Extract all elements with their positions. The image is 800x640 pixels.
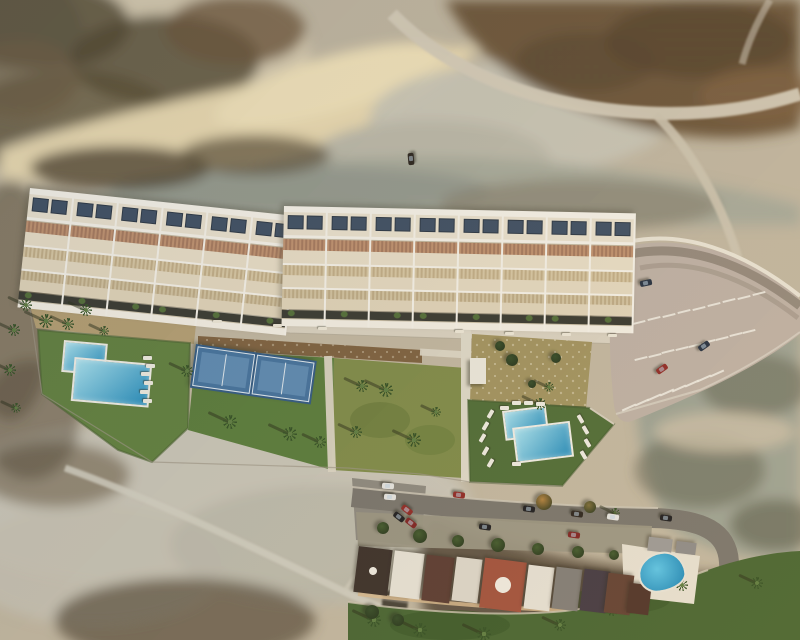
parking-bay-line <box>677 309 690 314</box>
shrub <box>341 311 348 317</box>
car <box>607 513 620 521</box>
terrace <box>327 251 369 267</box>
car <box>392 511 405 523</box>
parking-bay-line <box>742 329 755 334</box>
car <box>479 523 492 531</box>
terrace <box>283 250 325 266</box>
townhouse-west-row <box>17 188 286 334</box>
pergola-lattice <box>546 295 588 305</box>
pergola <box>459 243 501 255</box>
house-roof <box>675 541 696 555</box>
car <box>404 517 417 529</box>
solar-panel <box>76 202 93 218</box>
parking-bay-line <box>752 291 765 296</box>
pergola <box>283 239 325 251</box>
tree <box>551 353 561 363</box>
pergola-lattice <box>502 294 544 304</box>
bench <box>505 332 514 335</box>
solar-panel <box>438 218 454 232</box>
house-roof <box>647 537 673 554</box>
house-roof <box>353 546 392 596</box>
parking-bay-line <box>647 316 660 321</box>
pergola-lattice <box>282 289 324 299</box>
car <box>523 505 536 513</box>
tree <box>536 494 552 510</box>
front-wall <box>281 318 323 327</box>
front-wall <box>457 322 499 331</box>
front-wall <box>589 324 631 333</box>
tree <box>584 501 596 513</box>
shrub <box>159 306 167 313</box>
tree <box>452 535 464 547</box>
townhouse-unit <box>281 206 328 327</box>
front-wall <box>369 320 411 329</box>
car-windshield <box>482 525 488 530</box>
unit-roof <box>327 213 369 237</box>
car-windshield <box>403 507 409 513</box>
shrub <box>212 312 220 319</box>
car-windshield <box>610 515 616 520</box>
parking-bay-line <box>632 320 645 325</box>
terrace <box>502 280 544 295</box>
palm-tree <box>11 403 21 413</box>
palm-tree <box>477 627 491 640</box>
unit-roof <box>503 217 545 241</box>
unit-roof <box>459 216 501 240</box>
shrub <box>552 316 559 322</box>
pergola-lattice <box>458 293 500 303</box>
tree <box>365 605 379 619</box>
sun-lounger <box>482 421 490 431</box>
parking-bay-line <box>729 332 742 337</box>
solar-panel <box>32 197 49 213</box>
sun-lounger <box>536 402 545 406</box>
tree <box>528 380 536 388</box>
townhouse-unit <box>589 212 636 333</box>
solar-panel <box>551 221 567 235</box>
sun-lounger <box>580 450 588 460</box>
car-windshield <box>571 533 577 538</box>
terrace <box>326 276 368 291</box>
palm-tree <box>99 326 109 336</box>
terrace <box>547 256 589 272</box>
pergola <box>591 245 633 257</box>
terrace <box>370 300 412 312</box>
pergola-lattice <box>414 292 456 302</box>
terrace <box>458 279 500 294</box>
solar-panel <box>419 218 435 232</box>
palm-tree <box>413 623 427 637</box>
padel-court <box>192 346 255 394</box>
sun-lounger <box>577 414 585 424</box>
shrub <box>605 317 612 323</box>
palm-tree <box>407 433 421 447</box>
terrace <box>414 301 456 313</box>
parking-bay-line <box>707 302 720 307</box>
bench <box>455 330 464 333</box>
parking-bay-line <box>715 336 728 341</box>
pergola <box>547 245 589 257</box>
palm-tree <box>62 318 74 330</box>
terrace <box>590 304 632 316</box>
terrace <box>503 255 545 271</box>
car <box>400 504 413 516</box>
solar-panel <box>350 216 366 230</box>
terrace <box>502 303 544 315</box>
car-windshield <box>387 495 392 499</box>
parking-bay-line <box>675 346 688 351</box>
terrace <box>282 275 324 290</box>
unit-roof <box>547 218 589 242</box>
shrub <box>473 314 480 320</box>
solar-panel <box>507 220 523 234</box>
padel-court <box>252 355 315 403</box>
car-windshield <box>395 514 401 520</box>
terrace <box>458 302 500 314</box>
sun-lounger <box>500 406 509 410</box>
house-roof <box>523 565 554 612</box>
car <box>568 531 581 539</box>
sun-lounger <box>143 399 152 403</box>
car <box>407 153 414 165</box>
solar-panel <box>185 213 202 229</box>
tree <box>495 341 505 351</box>
palm-tree <box>554 619 566 631</box>
tree <box>377 522 389 534</box>
tree <box>491 538 505 552</box>
palm-tree <box>223 415 237 429</box>
sun-lounger <box>487 409 495 419</box>
car-windshield <box>407 520 413 526</box>
car <box>660 514 673 522</box>
townhouse-east-row <box>281 206 619 333</box>
terrace <box>590 281 632 296</box>
solar-panel <box>394 217 410 231</box>
sun-lounger <box>479 433 487 443</box>
townhouse-unit <box>325 207 372 328</box>
solar-panel <box>255 221 272 237</box>
unit-roof <box>415 215 457 239</box>
townhouse-unit <box>545 212 592 333</box>
terrace <box>546 304 588 316</box>
solar-panel <box>50 199 67 215</box>
solar-panel <box>229 218 246 234</box>
solar-panel <box>595 222 611 236</box>
sun-lounger <box>482 446 490 456</box>
parking-bay-line <box>710 370 725 378</box>
palm-tree <box>379 383 393 397</box>
house-roof <box>552 567 583 612</box>
aerial-photo-development: Aerial drone photograph (architectural r… <box>0 0 800 640</box>
terrace <box>282 298 324 310</box>
car-windshield <box>663 516 669 521</box>
tree <box>572 546 584 558</box>
car <box>382 483 394 490</box>
tree <box>413 529 427 543</box>
pergola-lattice <box>590 295 632 305</box>
bench <box>273 324 282 327</box>
car-windshield <box>385 484 390 488</box>
car-windshield <box>456 493 461 498</box>
tree <box>392 614 404 626</box>
terrace <box>415 253 457 269</box>
terrace <box>459 254 501 270</box>
parking-bay-line <box>648 353 661 358</box>
solar-panel <box>614 222 630 236</box>
solar-panel <box>166 211 183 227</box>
solar-panel <box>331 216 347 230</box>
solar-panel <box>121 207 138 223</box>
sun-lounger <box>487 458 495 468</box>
palm-tree <box>751 577 763 589</box>
car <box>640 279 653 287</box>
palm-tree <box>350 426 362 438</box>
bench <box>213 320 222 323</box>
roof-dome <box>494 576 512 594</box>
townhouse-unit <box>457 210 504 331</box>
house-roof <box>479 558 527 613</box>
terrace <box>371 252 413 268</box>
parking-bay-line <box>661 349 674 354</box>
house-roof <box>421 554 454 603</box>
car-windshield <box>526 507 532 512</box>
palm-tree <box>431 407 441 417</box>
pool-shed <box>470 358 486 384</box>
sun-lounger <box>512 401 521 405</box>
parking-bay-line <box>737 295 750 300</box>
parking-bay-line <box>722 298 735 303</box>
tree <box>609 550 619 560</box>
shrub <box>24 292 32 299</box>
palm-tree <box>544 382 554 392</box>
parking-bay-line <box>634 356 647 361</box>
unit-roof <box>591 218 633 242</box>
car-windshield <box>643 281 649 286</box>
sun-lounger <box>512 462 521 466</box>
pergola <box>503 244 545 256</box>
overlay-layer <box>0 0 800 640</box>
pergola <box>327 240 369 252</box>
parking-bay-line <box>662 313 675 318</box>
solar-panel <box>526 220 542 234</box>
car <box>655 363 668 375</box>
pergola <box>415 242 457 254</box>
townhouse-unit <box>501 211 548 332</box>
sun-lounger <box>143 356 152 360</box>
bench <box>608 334 617 337</box>
palm-tree <box>20 299 32 311</box>
pergola-lattice <box>370 291 412 301</box>
sun-lounger <box>582 425 590 435</box>
house-roof <box>451 557 482 604</box>
padel-courts <box>190 344 317 405</box>
sun-lounger <box>140 390 149 394</box>
car <box>384 494 396 501</box>
car <box>453 491 466 498</box>
solar-panel <box>482 219 498 233</box>
palm-tree <box>181 365 193 377</box>
front-wall <box>501 323 543 332</box>
tree <box>532 543 544 555</box>
palm-tree <box>283 427 297 441</box>
solar-panel <box>140 209 157 225</box>
solar-panel <box>211 216 228 232</box>
front-wall <box>413 321 455 330</box>
palm-tree <box>4 364 16 376</box>
palm-tree <box>314 436 326 448</box>
car <box>697 340 710 352</box>
palm-tree <box>8 324 20 336</box>
parking-bay-line <box>692 305 705 310</box>
terrace <box>546 281 588 296</box>
roof-dome <box>369 567 378 576</box>
sun-lounger <box>584 438 592 448</box>
front-wall <box>545 324 587 333</box>
car-windshield <box>700 343 706 349</box>
house-roof <box>389 550 424 599</box>
car-windshield <box>574 512 580 517</box>
unit-roof <box>283 212 325 236</box>
solar-panel <box>463 219 479 233</box>
terrace <box>370 277 412 292</box>
shrub <box>394 312 401 318</box>
pool-water <box>71 357 153 408</box>
terrace <box>591 256 633 272</box>
car-windshield <box>409 156 413 161</box>
bench <box>562 333 571 336</box>
shrub <box>526 315 533 321</box>
pergola <box>371 241 413 253</box>
car <box>571 510 584 518</box>
pergola-lattice <box>326 290 368 300</box>
solar-panel <box>95 204 112 220</box>
unit-roof <box>371 214 413 238</box>
sun-lounger <box>141 372 150 376</box>
shrub <box>420 313 427 319</box>
solar-panel <box>570 221 586 235</box>
front-wall <box>325 319 367 328</box>
bench <box>318 327 327 330</box>
townhouse-unit <box>413 209 460 330</box>
terrace <box>414 278 456 293</box>
sun-lounger <box>524 401 533 405</box>
solar-panel <box>375 217 391 231</box>
sun-lounger <box>146 364 155 368</box>
terrace <box>326 299 368 311</box>
palm-tree <box>80 304 92 316</box>
pool-water <box>512 421 574 464</box>
sun-lounger <box>144 381 153 385</box>
townhouse-unit <box>369 208 416 329</box>
solar-panel <box>306 215 322 229</box>
shrub <box>288 310 295 316</box>
solar-panel <box>287 215 303 229</box>
car-windshield <box>658 366 664 372</box>
tree <box>506 354 518 366</box>
shrub <box>132 303 140 310</box>
